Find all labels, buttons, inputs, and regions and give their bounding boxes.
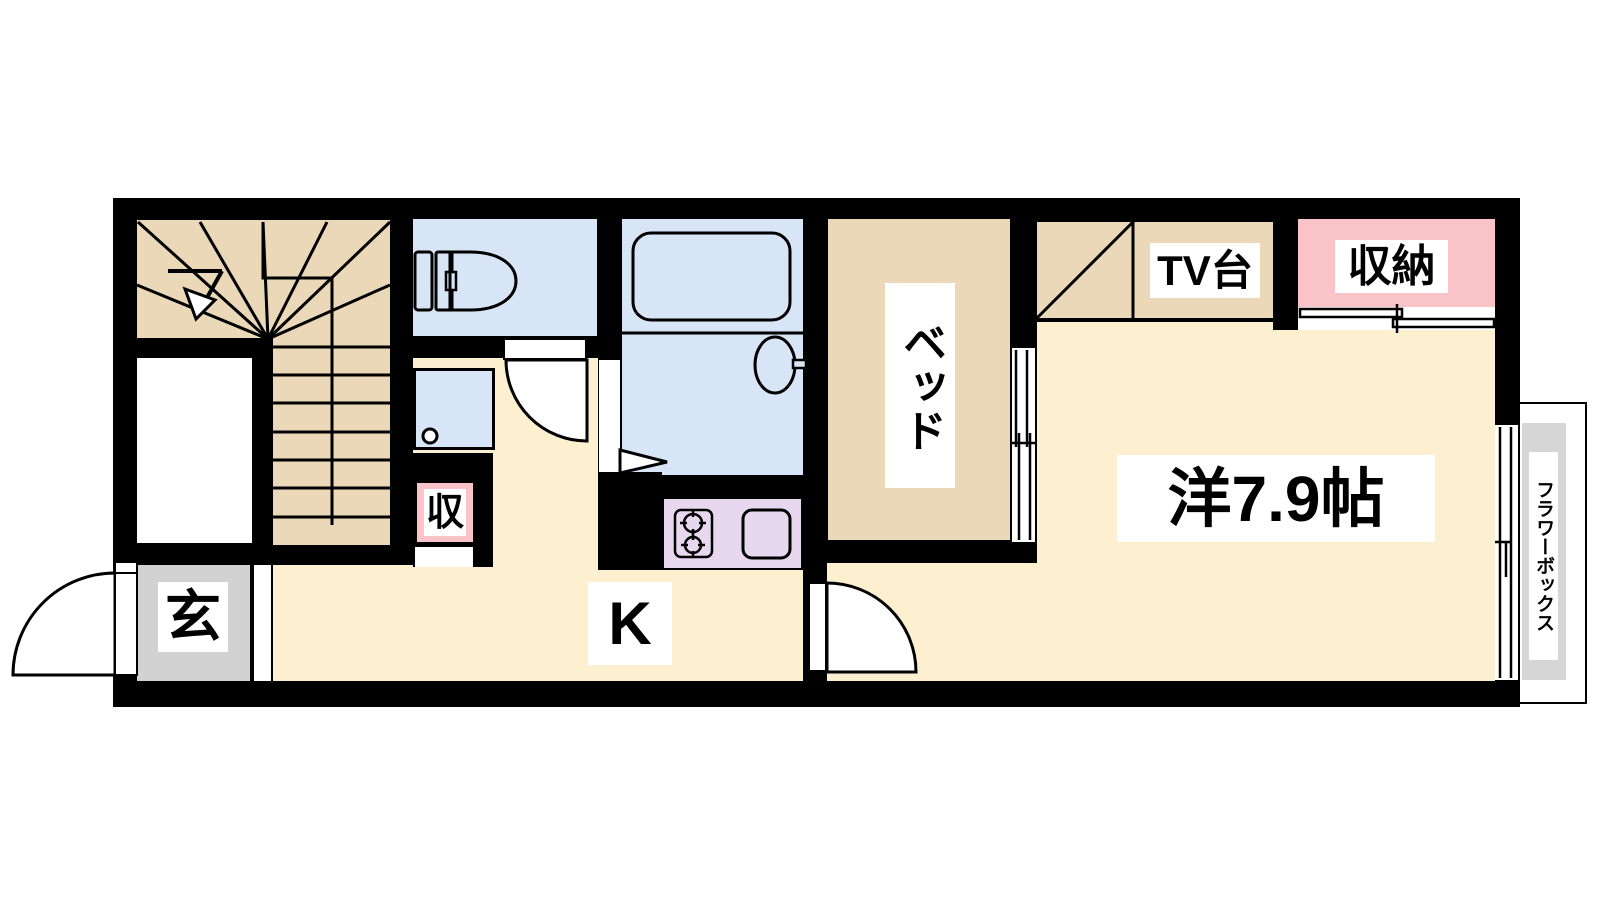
closet-label: 収納 xyxy=(1335,240,1448,293)
kitchen-floor xyxy=(273,565,803,681)
small-storage-opening xyxy=(415,547,473,567)
tv-stand-label: TV台 xyxy=(1150,243,1260,298)
entrance-step xyxy=(252,565,273,681)
room-under-stairs xyxy=(137,358,252,543)
floor-plan-canvas: 玄 K 収 ベッド TV台 収納 洋7.9帖 フラワーボックス xyxy=(0,0,1600,900)
right-window xyxy=(1495,425,1518,680)
bed-sliding-door xyxy=(1012,348,1035,542)
toilet-room-floor xyxy=(413,219,597,336)
entrance-label: 玄 xyxy=(158,582,228,652)
bath-door-opening xyxy=(599,360,620,472)
bathroom-floor xyxy=(622,219,803,475)
western-room-floor-south xyxy=(827,563,1495,681)
bed-label: ベッド xyxy=(885,283,955,488)
western-room-label: 洋7.9帖 xyxy=(1117,455,1435,542)
kitchen-label: K xyxy=(588,582,672,665)
kitchen-door-leaf xyxy=(808,582,827,672)
washing-machine-pan xyxy=(413,368,495,450)
closet-sliding-door xyxy=(1298,307,1495,330)
wall-fill-bath-corner xyxy=(598,472,662,570)
kitchen-counter xyxy=(662,497,803,570)
small-storage-label: 収 xyxy=(424,489,466,536)
toilet-door-opening xyxy=(503,338,587,360)
flower-box-label: フラワーボックス xyxy=(1529,452,1558,660)
